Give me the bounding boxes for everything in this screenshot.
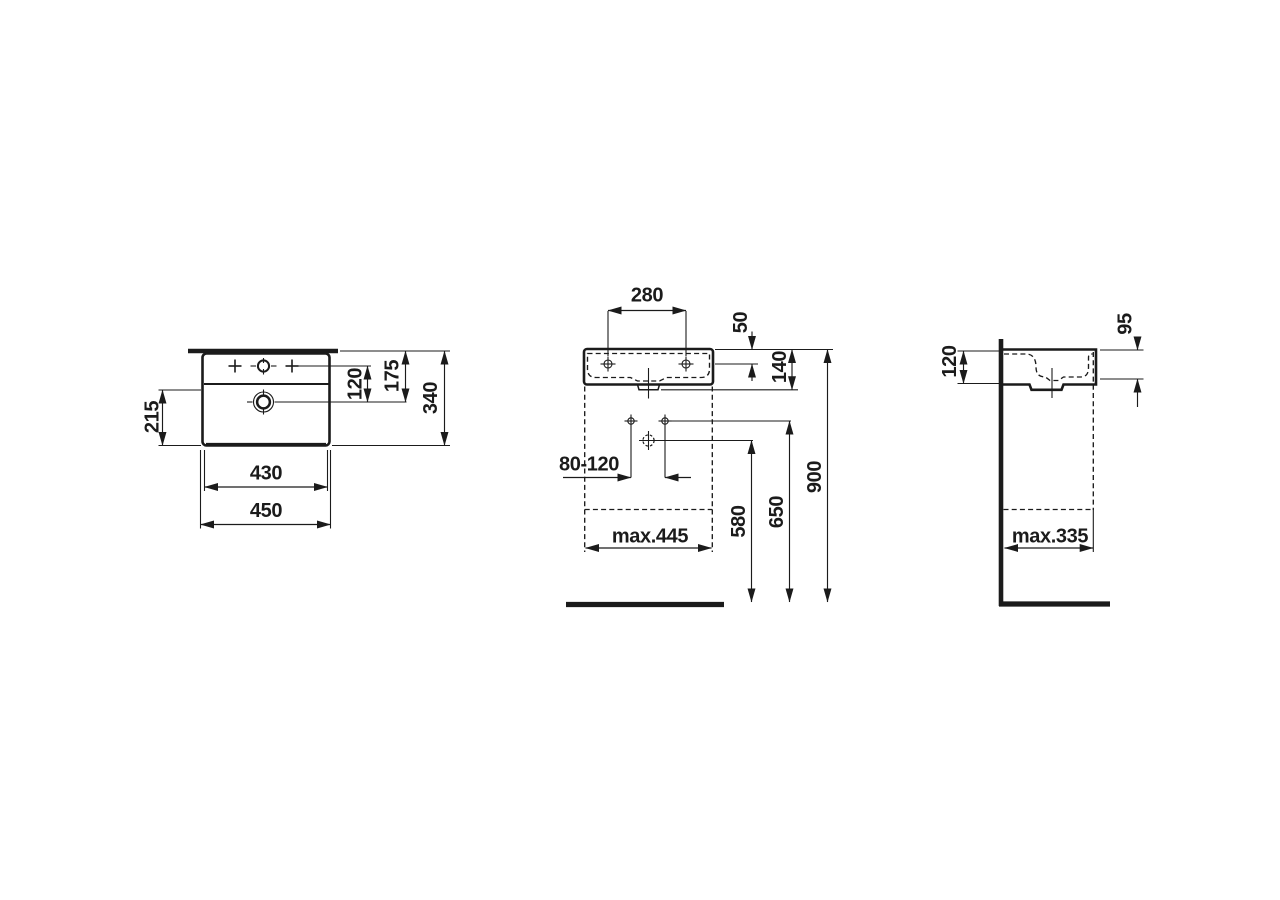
washbasin-dimension-drawing: 215 120 175 340 430 450 <box>0 0 1280 900</box>
basin-outline-plan <box>203 354 330 446</box>
dim-label-max335: max.335 <box>1012 526 1088 548</box>
drain-inner <box>257 396 270 409</box>
side-view: 120 95 max.335 <box>939 313 1144 606</box>
dim-label-50: 50 <box>730 312 752 334</box>
basin-outline-side <box>1003 350 1096 390</box>
dim-label-580: 580 <box>728 505 750 537</box>
dim-label-430: 430 <box>250 463 282 485</box>
supply-connections <box>625 415 672 428</box>
dim-label-80-120: 80-120 <box>559 454 619 476</box>
dim-label-175: 175 <box>382 360 404 392</box>
fixing-holes <box>601 357 694 372</box>
dim-label-max445: max.445 <box>612 526 688 548</box>
waste-connection <box>639 431 658 450</box>
dim-label-95: 95 <box>1115 313 1137 335</box>
dim-label-120-plan: 120 <box>345 368 367 400</box>
dim-label-650: 650 <box>766 496 788 528</box>
dim-label-340: 340 <box>420 382 442 414</box>
dim-label-900: 900 <box>804 461 826 493</box>
dim-label-450: 450 <box>250 500 282 522</box>
top-view: 215 120 175 340 430 450 <box>142 351 451 529</box>
dim-label-140: 140 <box>769 351 791 383</box>
hidden-bowl-contour-side <box>1004 354 1093 381</box>
drain-centerlines <box>247 390 264 415</box>
dim-label-215: 215 <box>142 401 164 433</box>
dim-label-120-side: 120 <box>939 345 961 377</box>
dim-label-280: 280 <box>631 285 663 307</box>
front-view: 280 50 140 <box>559 285 833 605</box>
tap-hole-centerlines <box>251 358 277 375</box>
technical-drawing-page: 215 120 175 340 430 450 <box>0 0 1280 900</box>
